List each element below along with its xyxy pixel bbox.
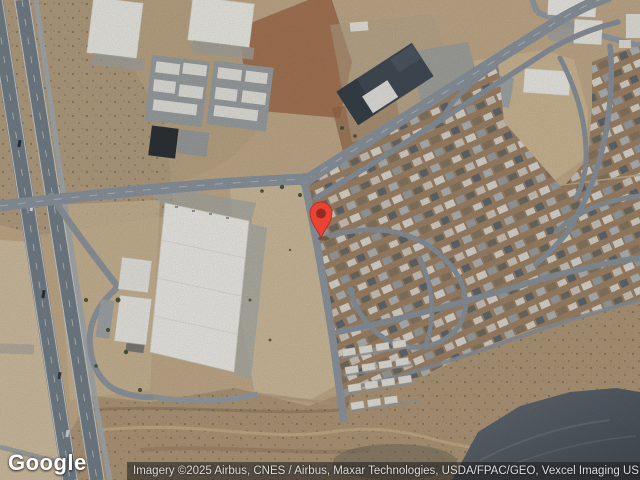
location-pin[interactable]	[306, 200, 336, 242]
pin-dot	[316, 209, 326, 219]
google-logo[interactable]: Google	[8, 450, 87, 476]
map-canvas[interactable]: Google Imagery ©2025 Airbus, CNES / Airb…	[0, 0, 640, 480]
pin-body	[310, 202, 332, 238]
pin-icon	[306, 200, 336, 242]
pin-shadow	[318, 236, 330, 240]
attribution-bar: Imagery ©2025 Airbus, CNES / Airbus, Max…	[127, 462, 640, 480]
attribution-text: Imagery ©2025 Airbus, CNES / Airbus, Max…	[133, 465, 640, 477]
